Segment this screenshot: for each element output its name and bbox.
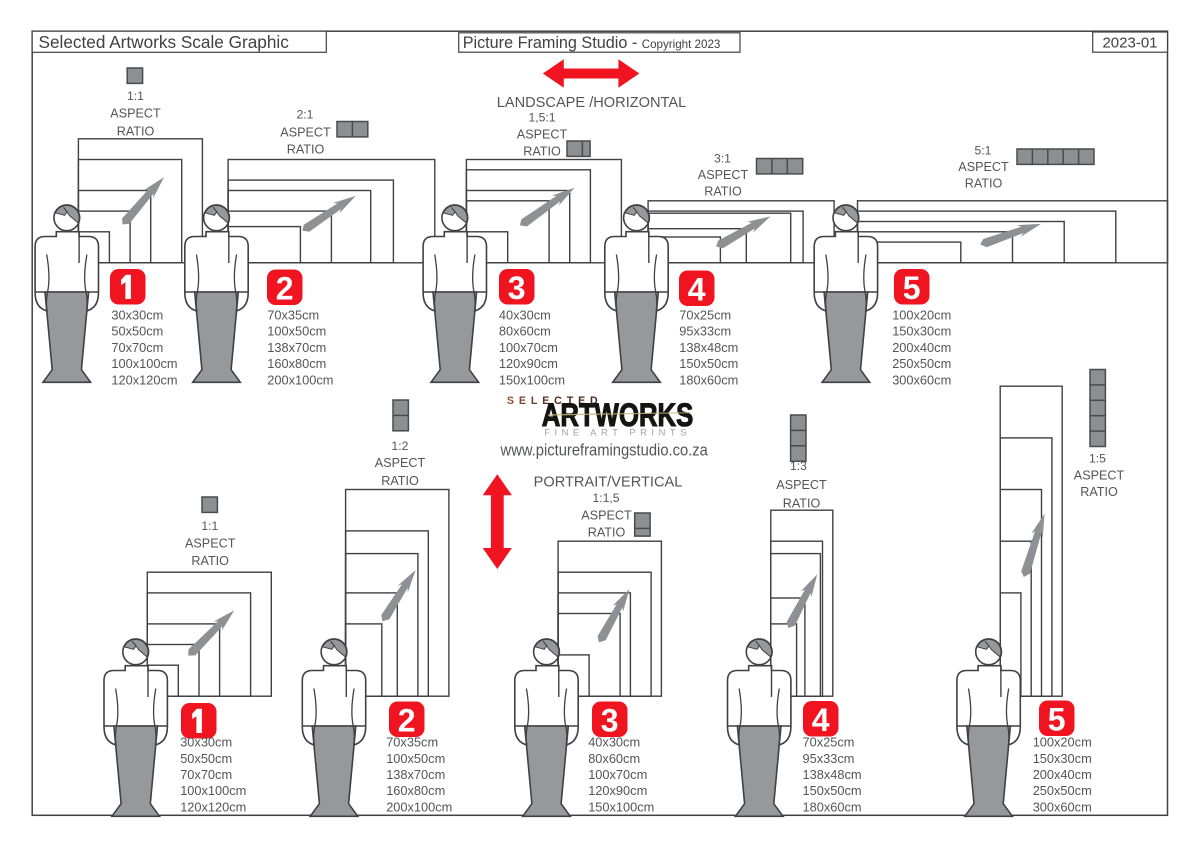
svg-text:RATIO: RATIO — [1080, 485, 1118, 499]
svg-text:2023-01: 2023-01 — [1102, 35, 1157, 52]
svg-text:2:1: 2:1 — [297, 107, 314, 121]
svg-text:70x25cm95x33cm138x48cm150x50cm: 70x25cm95x33cm138x48cm150x50cm180x60cm — [679, 308, 738, 388]
svg-text:RATIO: RATIO — [381, 474, 419, 488]
svg-text:RATIO: RATIO — [117, 124, 155, 138]
svg-text:RATIO: RATIO — [704, 185, 742, 199]
svg-text:4: 4 — [688, 271, 706, 307]
svg-text:RATIO: RATIO — [783, 497, 821, 511]
svg-text:ASPECT: ASPECT — [698, 168, 749, 182]
svg-text:ASPECT: ASPECT — [1074, 469, 1125, 483]
svg-text:PORTRAIT/VERTICAL: PORTRAIT/VERTICAL — [534, 474, 683, 490]
svg-text:ASPECT: ASPECT — [776, 478, 827, 492]
svg-text:RATIO: RATIO — [588, 525, 626, 539]
svg-text:1:1: 1:1 — [201, 519, 218, 533]
svg-text:100x20cm150x30cm200x40cm250x50: 100x20cm150x30cm200x40cm250x50cm300x60cm — [892, 308, 951, 388]
svg-text:2: 2 — [276, 270, 294, 306]
svg-text:1:1: 1:1 — [127, 89, 144, 103]
svg-text:RATIO: RATIO — [191, 554, 229, 568]
svg-text:100x20cm150x30cm200x40cm250x50: 100x20cm150x30cm200x40cm250x50cm300x60cm — [1033, 735, 1092, 815]
svg-text:RATIO: RATIO — [287, 143, 325, 157]
svg-text:www.pictureframingstudio.co.za: www.pictureframingstudio.co.za — [500, 441, 708, 459]
svg-text:ASPECT: ASPECT — [517, 128, 568, 142]
svg-text:ASPECT: ASPECT — [280, 125, 331, 139]
svg-text:3: 3 — [508, 270, 526, 306]
svg-text:ASPECT: ASPECT — [375, 456, 426, 470]
svg-text:2: 2 — [398, 702, 416, 738]
svg-text:5: 5 — [1048, 701, 1066, 737]
svg-text:5: 5 — [903, 270, 921, 306]
svg-text:1:1,5: 1:1,5 — [592, 491, 619, 505]
svg-text:5:1: 5:1 — [975, 144, 992, 158]
svg-text:3:1: 3:1 — [714, 152, 731, 166]
svg-text:ASPECT: ASPECT — [581, 508, 632, 522]
svg-text:1:5: 1:5 — [1089, 452, 1106, 466]
svg-text:RATIO: RATIO — [965, 177, 1003, 191]
svg-text:70x25cm95x33cm138x48cm150x50cm: 70x25cm95x33cm138x48cm150x50cm180x60cm — [803, 735, 862, 815]
svg-text:FINE ART PRINTS: FINE ART PRINTS — [544, 427, 691, 438]
svg-text:RATIO: RATIO — [523, 145, 561, 159]
svg-text:1:2: 1:2 — [391, 439, 408, 453]
svg-text:3: 3 — [601, 702, 619, 738]
svg-text:ASPECT: ASPECT — [185, 536, 236, 550]
svg-text:ASPECT: ASPECT — [110, 107, 161, 121]
svg-text:LANDSCAPE /HORIZONTAL: LANDSCAPE /HORIZONTAL — [497, 95, 686, 111]
svg-text:1,5:1: 1,5:1 — [528, 111, 555, 125]
svg-text:4: 4 — [812, 702, 830, 738]
svg-text:Selected Artworks Scale Graphi: Selected Artworks Scale Graphic — [39, 32, 290, 52]
svg-text:ASPECT: ASPECT — [958, 160, 1009, 174]
